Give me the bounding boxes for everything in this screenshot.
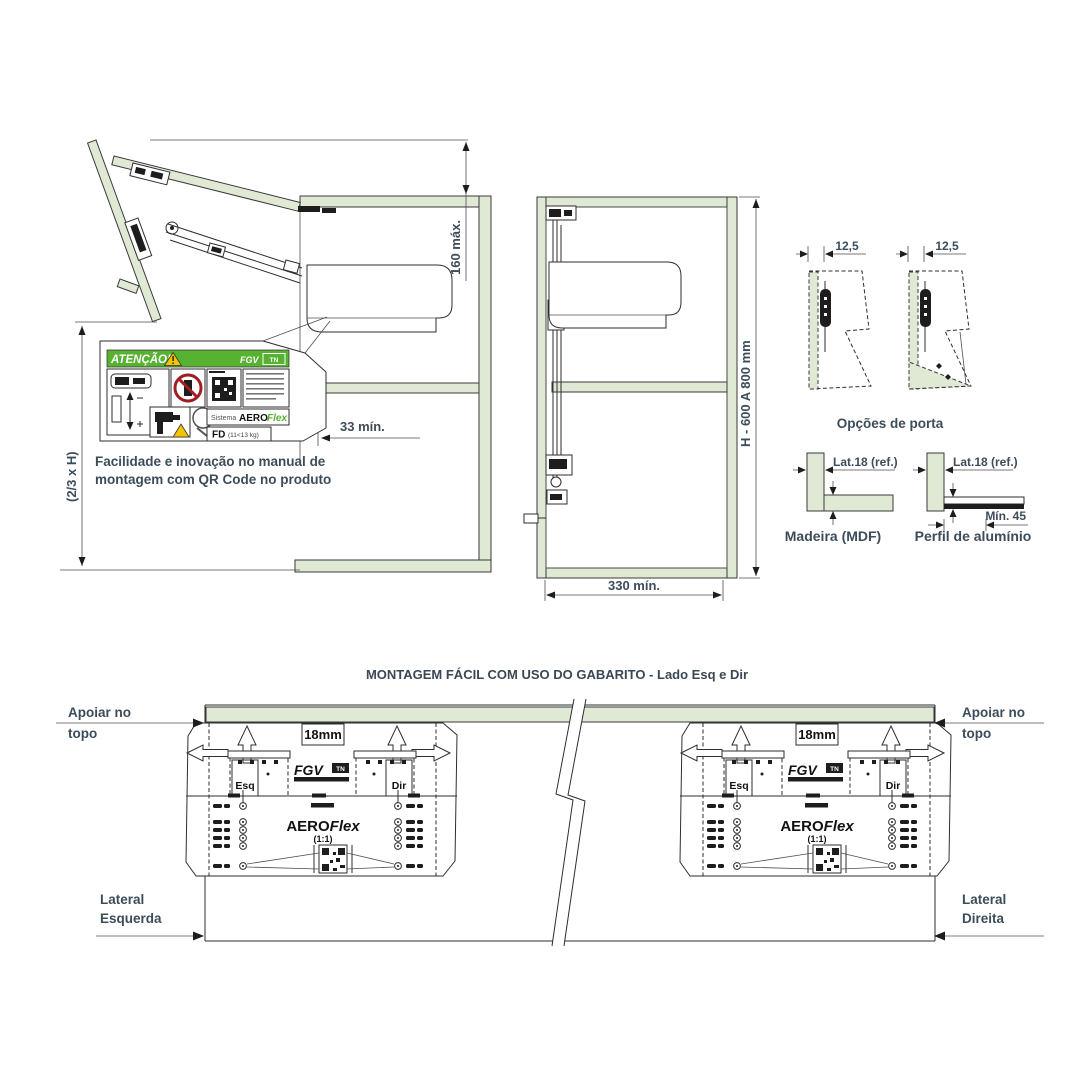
door-knob — [117, 279, 139, 293]
technical-drawing-page: 18mm Esq — [0, 0, 1080, 1080]
lateral-line2: Esquerda — [100, 911, 162, 926]
side-panel-options: Lat.18 (ref.) Madeira (MDF) Lat.18 (ref.… — [785, 453, 1032, 544]
lift-mechanism — [125, 163, 336, 283]
inner-tray — [549, 262, 681, 328]
lateral-line1: Lateral — [100, 892, 144, 907]
wood-option: Lat.18 (ref.) Madeira (MDF) — [785, 453, 898, 544]
alu-dim-label: Lat.18 (ref.) — [953, 455, 1018, 469]
open-door-diagram: 160 máx. (2/3 x H) 33 mín. ATENÇÃO! — [60, 140, 491, 572]
cabinet-right-panel — [479, 196, 491, 572]
dim-12-5-label: 12,5 — [935, 239, 959, 253]
lift-mechanism-front — [524, 206, 576, 523]
model-range: (11<13 kg) — [228, 432, 259, 439]
cabinet-shelf — [552, 382, 727, 392]
drawing-svg: 18mm Esq — [0, 0, 1080, 1080]
apoiar-line2: topo — [962, 726, 991, 741]
prohibition-icon — [171, 369, 205, 407]
closed-cabinet-diagram: H - 600 A 800 mm 330 mín. — [524, 197, 760, 601]
dim-160-label: 160 máx. — [448, 220, 463, 275]
jig-template-left — [186, 723, 457, 876]
dim-330-min: 330 mín. — [545, 578, 723, 601]
wood-caption: Madeira (MDF) — [785, 528, 881, 544]
lateral-line1: Lateral — [962, 892, 1006, 907]
apoiar-line1: Apoiar no — [68, 705, 131, 720]
cabinet-bottom — [537, 568, 737, 578]
wood-dim-label: Lat.18 (ref.) — [833, 455, 898, 469]
dim-height-label: H - 600 A 800 mm — [738, 340, 753, 447]
apoiar-line1: Apoiar no — [962, 705, 1025, 720]
caption-line1: Facilidade e inovação no manual de — [95, 454, 326, 469]
instructions-text-block — [243, 369, 289, 407]
atencao-label: ATENÇÃO! — [110, 353, 171, 366]
system-prefix: Sistema — [211, 415, 236, 422]
qr-code-icon — [207, 369, 241, 407]
cabinet-shelf — [318, 383, 479, 393]
label-brand: FGV — [240, 355, 259, 365]
door-options-caption: Opções de porta — [837, 416, 944, 431]
system-name-bold: AERO — [239, 413, 268, 424]
lateral-line2: Direita — [962, 911, 1005, 926]
label-brand-badge: TN — [270, 357, 279, 364]
system-name-italic: Flex — [267, 413, 287, 424]
dim-12-5-right: 12,5 — [896, 239, 966, 262]
aluminium-caption: Perfil de alumínio — [915, 528, 1032, 544]
cabinet-top-panel — [300, 196, 491, 207]
dim-height: H - 600 A 800 mm — [738, 197, 760, 578]
dim-12-5-label: 12,5 — [835, 239, 859, 253]
door-option-right: 12,5 — [896, 239, 971, 389]
jig-section-title: MONTAGEM FÁCIL COM USO DO GABARITO - Lad… — [366, 667, 748, 682]
min-45-label: Mín. 45 — [985, 509, 1026, 523]
label-apoiar-topo-left: Apoiar no topo — [56, 705, 204, 741]
label-lateral-esquerda: Lateral Esquerda — [96, 892, 204, 941]
jig-template-right — [680, 723, 951, 876]
apoiar-line2: topo — [68, 726, 97, 741]
jig-section: MONTAGEM FÁCIL COM USO DO GABARITO - Lad… — [56, 667, 1044, 946]
warning-label-callout: ATENÇÃO! FGV TN — [100, 317, 330, 441]
dim-23h-label: (2/3 x H) — [64, 451, 79, 502]
aluminium-profile — [944, 497, 1024, 504]
aluminium-option: Lat.18 (ref.) Mín. 45 Perfil de alumínio — [913, 453, 1031, 544]
inner-tray — [307, 265, 452, 332]
door-option-left: 12,5 — [796, 239, 871, 389]
dim-12-5-left: 12,5 — [796, 239, 866, 262]
dim-33-label: 33 mín. — [340, 419, 385, 434]
door-options-diagram: 12,5 12,5 Opções de porta — [796, 239, 971, 431]
cabinet-bottom-panel — [295, 560, 491, 572]
model-label: FD — [212, 430, 225, 441]
caption-line2: montagem com QR Code no produto — [95, 472, 331, 487]
dim-330-label: 330 mín. — [608, 578, 660, 593]
label-lateral-direita: Lateral Direita — [934, 892, 1044, 941]
cabinet-right — [727, 197, 737, 578]
